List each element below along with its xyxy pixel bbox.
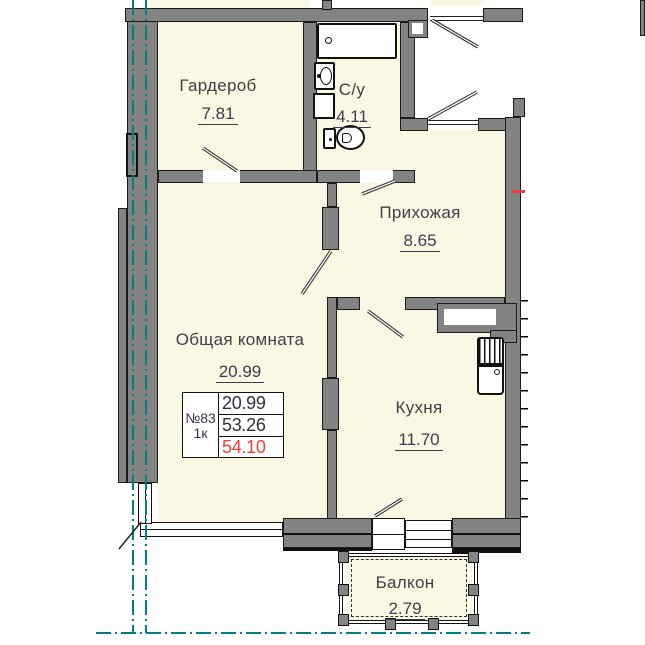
wall-entrance-left — [400, 118, 428, 131]
wall-corridor-notch-inner — [412, 23, 423, 34]
label-hallway: Прихожая — [350, 203, 490, 223]
neighbor-apartment-strip — [150, 0, 310, 8]
bathtub — [317, 23, 397, 59]
kitchen-faucet — [494, 369, 500, 375]
balcony-post — [338, 551, 349, 563]
balcony-post — [428, 618, 439, 630]
door-opening-wardrobe — [203, 170, 240, 183]
door-opening-living — [322, 250, 339, 297]
unit-living-area: 20.99 — [219, 393, 283, 415]
area-bathroom: 4.11 — [322, 107, 382, 127]
wall-base — [283, 548, 372, 551]
axis-line-vertical — [145, 0, 147, 633]
label-living-room: Общая комната — [155, 330, 325, 350]
area-value: 7.81 — [198, 104, 237, 125]
wall-mid — [327, 183, 337, 207]
door-opening-bathroom — [360, 170, 393, 183]
unit-type: 1к — [194, 426, 208, 441]
kitchen-sink — [477, 365, 504, 395]
label-wardrobe: Гардероб — [148, 76, 288, 96]
vent-shaft-inner — [444, 309, 496, 325]
toilet-bowl — [336, 125, 365, 150]
area-kitchen: 11.70 — [349, 430, 489, 450]
red-mark — [512, 190, 525, 193]
wall-course-line — [452, 533, 521, 535]
area-value: 20.99 — [216, 362, 265, 383]
unit-area: 53.26 — [219, 415, 283, 437]
wall-mid — [327, 297, 337, 378]
toilet-tank-dot — [329, 138, 332, 141]
balcony-rail-bottom — [349, 620, 469, 624]
label-kitchen: Кухня — [349, 398, 489, 418]
wall-mid-pier — [322, 207, 339, 250]
toilet-bowl-inner — [342, 133, 352, 143]
area-balcony: 2.79 — [340, 599, 470, 619]
wall-top — [125, 8, 428, 22]
room-living — [158, 183, 338, 522]
wall-hall-kitchen — [337, 297, 360, 310]
area-value: 2.79 — [385, 599, 424, 620]
balcony-rail-top — [349, 553, 469, 557]
unit-number-cell: №83 1к — [183, 393, 219, 458]
area-living-room: 20.99 — [155, 362, 325, 382]
area-wardrobe: 7.81 — [148, 104, 288, 124]
floor-plan: Гардероб 7.81 С/у 4.11 Прихожая 8.65 Общ… — [0, 0, 645, 645]
edge-fragment — [640, 0, 645, 36]
room-wardrobe — [158, 22, 303, 170]
window-kitchen — [405, 520, 452, 548]
sink-tap — [317, 74, 321, 78]
unit-info-table: №83 1к 20.99 53.26 54.10 — [182, 392, 284, 458]
balcony-door — [372, 518, 405, 550]
door-threshold-corridor — [430, 16, 483, 21]
axis-line-vertical — [132, 0, 134, 633]
neighbor-apartment-strip — [430, 0, 483, 5]
area-value: 8.65 — [400, 231, 439, 252]
wall-mid — [327, 430, 337, 522]
wall-top-corridor — [483, 8, 523, 22]
bathtub-drain — [325, 37, 332, 44]
wall-mid-pier — [322, 378, 339, 430]
axis-line-horizontal — [96, 632, 530, 634]
kitchen-drainer — [477, 337, 504, 365]
balcony-post — [468, 551, 479, 563]
wall-corridor-pier — [513, 98, 525, 117]
section-ticks — [521, 300, 528, 518]
corner-diagonal — [119, 522, 141, 549]
wall-left-pilaster — [118, 208, 127, 483]
area-value: 4.11 — [333, 107, 371, 128]
wall-course-line — [283, 533, 372, 535]
label-balcony: Балкон — [340, 573, 470, 593]
area-hallway: 8.65 — [350, 231, 490, 251]
wall-pier — [322, 0, 332, 10]
area-value: 11.70 — [395, 430, 442, 451]
label-bathroom: С/у — [322, 80, 382, 100]
window-living — [140, 522, 283, 537]
toilet-tank — [323, 128, 336, 149]
room-hallway — [400, 130, 505, 170]
door-threshold-entrance — [428, 120, 478, 125]
unit-total-area: 54.10 — [219, 437, 283, 458]
unit-number: №83 — [185, 411, 216, 426]
